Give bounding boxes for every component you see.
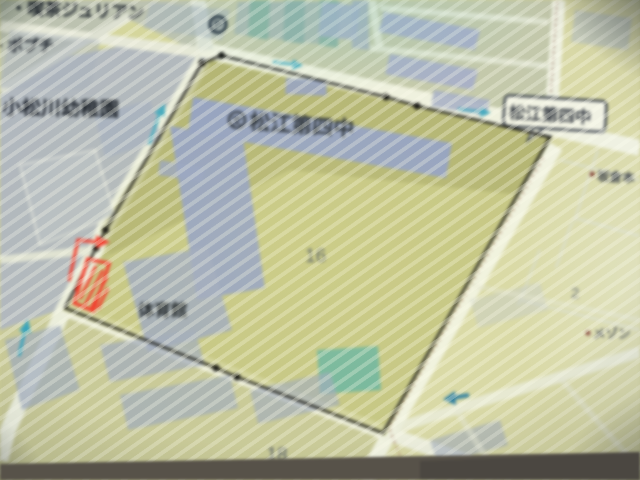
svg-text:体育館: 体育館 — [138, 300, 188, 320]
svg-text:小松川幼稚園: 小松川幼稚園 — [2, 96, 119, 121]
svg-text:・ポプチ: ・ポプチ — [0, 36, 54, 55]
svg-text:文: 文 — [231, 114, 244, 129]
svg-text:坂倉本: 坂倉本 — [597, 168, 636, 185]
svg-text:16: 16 — [305, 246, 326, 267]
svg-text:18: 18 — [266, 444, 288, 466]
svg-text:メゾン: メゾン — [593, 326, 631, 341]
svg-text:2: 2 — [571, 285, 579, 302]
svg-text:P: P — [214, 20, 222, 32]
